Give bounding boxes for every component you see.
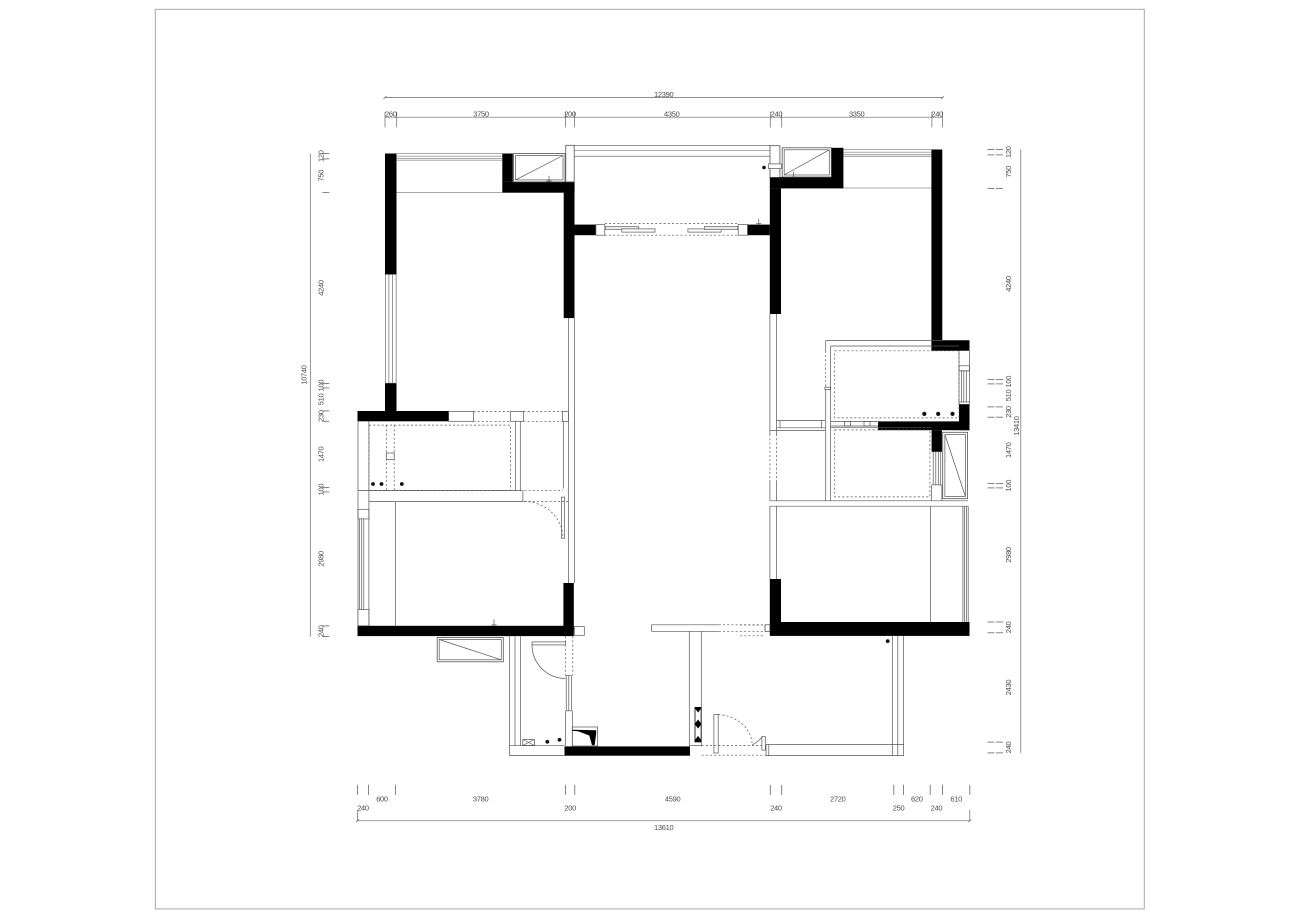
svg-text:2980: 2980 <box>317 551 326 567</box>
svg-text:750: 750 <box>317 170 326 182</box>
svg-text:240: 240 <box>1004 621 1013 633</box>
svg-text:240: 240 <box>357 804 369 813</box>
svg-text:240: 240 <box>931 804 943 813</box>
svg-text:100: 100 <box>317 380 326 392</box>
svg-text:510: 510 <box>317 393 326 405</box>
svg-text:1470: 1470 <box>317 446 326 462</box>
svg-text:120: 120 <box>1004 146 1013 158</box>
svg-text:100: 100 <box>1004 480 1013 492</box>
svg-text:4350: 4350 <box>664 110 680 119</box>
svg-text:4240: 4240 <box>317 280 326 296</box>
svg-text:100: 100 <box>317 484 326 496</box>
svg-text:4590: 4590 <box>665 795 681 804</box>
svg-text:4240: 4240 <box>1004 276 1013 292</box>
svg-text:750: 750 <box>1004 166 1013 178</box>
svg-text:240: 240 <box>931 110 943 119</box>
svg-text:3780: 3780 <box>473 795 489 804</box>
svg-text:13610: 13610 <box>654 823 673 832</box>
svg-text:2720: 2720 <box>830 795 846 804</box>
svg-text:2980: 2980 <box>1004 547 1013 563</box>
svg-text:1470: 1470 <box>1004 442 1013 458</box>
svg-text:600: 600 <box>376 795 388 804</box>
svg-text:240: 240 <box>771 110 783 119</box>
svg-text:100: 100 <box>1004 376 1013 388</box>
svg-text:120: 120 <box>317 150 326 162</box>
svg-text:610: 610 <box>950 795 962 804</box>
svg-text:620: 620 <box>911 795 923 804</box>
svg-text:10740: 10740 <box>299 365 308 384</box>
svg-text:230: 230 <box>1004 406 1013 418</box>
svg-text:2430: 2430 <box>1004 680 1013 696</box>
svg-text:250: 250 <box>893 804 905 813</box>
svg-text:230: 230 <box>317 410 326 422</box>
svg-text:12390: 12390 <box>654 90 673 99</box>
svg-text:240: 240 <box>317 625 326 637</box>
svg-text:200: 200 <box>564 804 576 813</box>
svg-text:240: 240 <box>1004 742 1013 754</box>
svg-text:240: 240 <box>770 804 782 813</box>
svg-text:13410: 13410 <box>1012 416 1021 435</box>
svg-text:3350: 3350 <box>849 110 865 119</box>
svg-text:510: 510 <box>1004 389 1013 401</box>
svg-text:3750: 3750 <box>473 110 489 119</box>
svg-text:260: 260 <box>385 110 397 119</box>
svg-text:200: 200 <box>564 110 576 119</box>
